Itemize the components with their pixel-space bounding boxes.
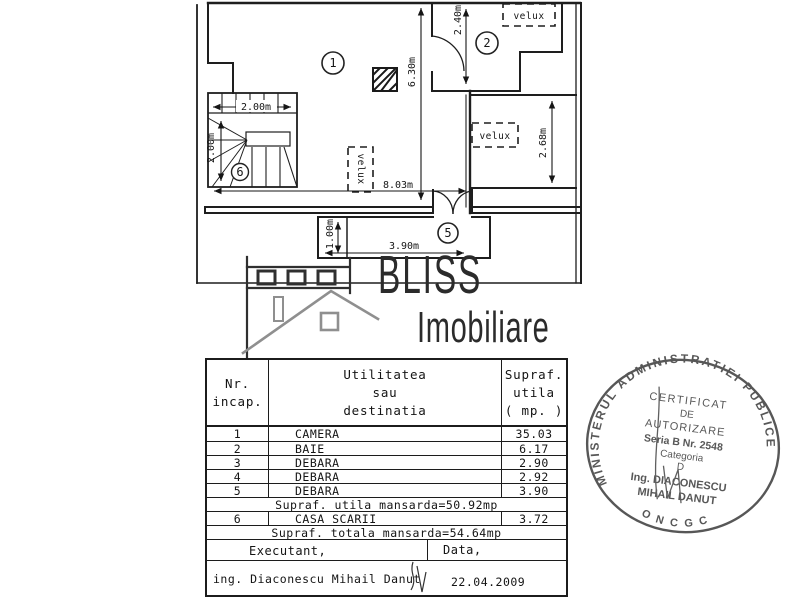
header-suprafata: Supraf. utila ( mp. ) xyxy=(502,360,566,425)
header-nr: Nr. incap. xyxy=(207,360,269,425)
row-area: 3.90 xyxy=(502,484,566,497)
row-name: DEBARA xyxy=(269,456,502,469)
row-nr: 2 xyxy=(207,442,269,455)
room-number-markers: 1 2 5 6 xyxy=(232,32,499,243)
data-label: Data, xyxy=(443,543,482,557)
stamp-center-text: CERTIFICAT DE AUTORIZARE Seria B Nr. 254… xyxy=(628,389,737,508)
logo-chimney xyxy=(274,297,283,321)
dim-balcony-depth: 1.00m xyxy=(325,219,336,249)
subtotal-text: Supraf. utila mansarda=50.92mp xyxy=(275,498,498,512)
logo-window xyxy=(321,313,338,330)
table-row: 1 CAMERA 35.03 xyxy=(207,427,566,441)
row-name: DEBARA xyxy=(269,470,502,483)
row-nr: 3 xyxy=(207,456,269,469)
table-row: 4 DEBARA 2.92 xyxy=(207,469,566,483)
executant-label: Executant, xyxy=(249,544,326,558)
dim-room2-depth: 2.40m xyxy=(453,5,464,35)
header-suprafata-line1: Supraf. xyxy=(505,367,563,382)
header-suprafata-line2: utila xyxy=(513,385,555,400)
table-header-row: Nr. incap. Utilitatea sau destinatia Sup… xyxy=(207,360,566,427)
executant-name: ing. Diaconescu Mihail Danut xyxy=(213,572,421,586)
room1-number: 1 xyxy=(329,56,336,70)
velux-label-right: velux xyxy=(479,131,510,142)
balcony-door-left-arc xyxy=(433,191,453,214)
stamp-line-de: DE xyxy=(679,408,694,421)
header-utilitatea-line2: sau xyxy=(373,385,398,400)
table-row: 2 BAIE 6.17 xyxy=(207,441,566,455)
row-nr: 1 xyxy=(207,427,269,441)
row-name: BAIE xyxy=(269,442,502,455)
row-nr: 5 xyxy=(207,484,269,497)
dim-room1-height: 6.30m xyxy=(407,57,418,87)
room2-number: 2 xyxy=(483,36,490,50)
row-area: 6.17 xyxy=(502,442,566,455)
header-nr-line1: Nr. xyxy=(225,376,250,391)
logo-house-icon xyxy=(243,257,378,358)
signature-row: ing. Diaconescu Mihail Danut 22.04.2009 xyxy=(207,560,566,595)
table-row: 3 DEBARA 2.90 xyxy=(207,455,566,469)
svg-text:O N C G C: O N C G C xyxy=(639,506,712,534)
total-row: Supraf. totala mansarda=54.64mp xyxy=(207,525,566,539)
header-nr-line2: incap. xyxy=(213,394,263,409)
executant-row: Executant, Data, xyxy=(207,539,566,560)
velux-label-top: velux xyxy=(513,11,544,22)
velux-boxes xyxy=(348,4,555,192)
room2-door-arc xyxy=(432,36,464,71)
certification-stamp: MINISTERUL ADMINISTRATIEI PUBLICE O N C … xyxy=(577,341,790,543)
velux-label-bottom: velux xyxy=(355,153,366,184)
header-utilitatea: Utilitatea sau destinatia xyxy=(269,360,502,425)
room5-number: 5 xyxy=(444,226,451,240)
header-utilitatea-line3: destinatia xyxy=(343,403,426,418)
logo-subtitle: Imobiliare xyxy=(417,303,549,353)
dim-stair-depth: 2.00m xyxy=(206,133,217,163)
area-table: Nr. incap. Utilitatea sau destinatia Sup… xyxy=(205,358,568,597)
total-text: Supraf. totala mansarda=54.64mp xyxy=(271,526,501,540)
chimney-hatch xyxy=(373,68,397,91)
subtotal-row: Supraf. utila mansarda=50.92mp xyxy=(207,497,566,511)
row-nr: 4 xyxy=(207,470,269,483)
stamp-bottom-text: O N C G C xyxy=(639,506,712,534)
row-name: CAMERA xyxy=(269,427,502,441)
table-row: 6 CASA SCARII 3.72 xyxy=(207,511,566,525)
header-suprafata-line3: ( mp. ) xyxy=(505,403,563,418)
row-area: 2.90 xyxy=(502,456,566,469)
logo-brand: BLISS xyxy=(378,244,482,306)
executant-divider xyxy=(427,540,428,560)
dim-total-width: 8.03m xyxy=(383,180,413,191)
row-nr: 6 xyxy=(207,512,269,525)
row-name: DEBARA xyxy=(269,484,502,497)
date-value: 22.04.2009 xyxy=(451,575,525,589)
row-name: CASA SCARII xyxy=(269,512,502,525)
row-area: 3.72 xyxy=(502,512,566,525)
dim-right-room-depth: 2.68m xyxy=(538,128,549,158)
header-utilitatea-line1: Utilitatea xyxy=(343,367,426,382)
table-row: 5 DEBARA 3.90 xyxy=(207,483,566,497)
row-area: 35.03 xyxy=(502,427,566,441)
room6-number: 6 xyxy=(236,165,243,179)
logo-roof xyxy=(243,291,378,353)
dim-stair-width: 2.00m xyxy=(241,102,271,113)
row-area: 2.92 xyxy=(502,470,566,483)
scanned-floor-plan-page: velux velux velux 2.00m 2.00m 6.30m 2.40… xyxy=(0,0,800,600)
